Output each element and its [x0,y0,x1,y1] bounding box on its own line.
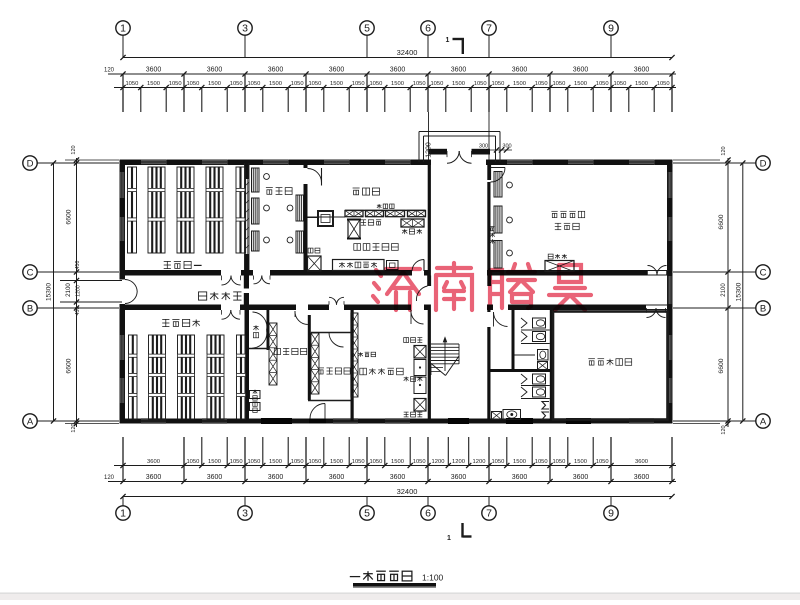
svg-text:1500: 1500 [391,459,404,465]
svg-text:1050: 1050 [308,459,321,465]
svg-text:1050: 1050 [491,459,504,465]
svg-text:1200: 1200 [432,459,445,465]
svg-text:6600: 6600 [66,209,73,224]
svg-text:3600: 3600 [635,459,648,465]
svg-text:3600: 3600 [512,474,528,481]
svg-text:2100: 2100 [721,283,727,297]
svg-text:3: 3 [242,23,248,35]
svg-text:A: A [27,417,34,428]
svg-text:32400: 32400 [397,48,418,57]
svg-text:1050: 1050 [535,459,548,465]
svg-text:1050: 1050 [474,81,487,87]
svg-text:5: 5 [364,23,370,35]
svg-text:3600: 3600 [146,474,162,481]
svg-text:3600: 3600 [634,67,650,74]
svg-text:1500: 1500 [635,81,648,87]
svg-text:15300: 15300 [46,283,53,301]
svg-text:1500: 1500 [147,81,160,87]
svg-text:2100: 2100 [65,283,72,297]
svg-text:1050: 1050 [552,459,565,465]
svg-text:6600: 6600 [66,358,73,373]
svg-text:6: 6 [425,23,431,35]
svg-text:3600: 3600 [634,474,650,481]
svg-text:15300: 15300 [736,282,743,301]
svg-text:1: 1 [446,37,450,44]
svg-text:450: 450 [75,261,81,270]
svg-text:3600: 3600 [146,67,162,74]
svg-text:3600: 3600 [207,474,223,481]
svg-text:300: 300 [502,144,511,150]
svg-text:1050: 1050 [247,459,260,465]
svg-text:1050: 1050 [308,81,321,87]
svg-text:32400: 32400 [397,487,418,496]
svg-text:1050: 1050 [596,459,609,465]
svg-text:120: 120 [104,68,115,74]
svg-text:1050: 1050 [186,81,199,87]
svg-text:1050: 1050 [352,459,365,465]
svg-text:7: 7 [486,508,492,520]
svg-text:3600: 3600 [512,67,528,74]
svg-text:1050: 1050 [657,81,670,87]
svg-text:9: 9 [608,508,614,520]
svg-text:1500: 1500 [330,459,343,465]
svg-text:120: 120 [71,145,77,154]
svg-text:1500: 1500 [513,81,526,87]
svg-text:1500: 1500 [452,81,465,87]
svg-text:1500: 1500 [330,81,343,87]
svg-text:9: 9 [608,23,614,35]
svg-text:1500: 1500 [513,459,526,465]
svg-text:1050: 1050 [413,81,426,87]
svg-text:1050: 1050 [169,81,182,87]
svg-text:1050: 1050 [535,81,548,87]
svg-text:1050: 1050 [230,81,243,87]
svg-text:1200: 1200 [426,142,433,158]
svg-text:1050: 1050 [613,81,626,87]
svg-text:300: 300 [479,144,488,150]
svg-text:5: 5 [364,508,370,520]
svg-text:1050: 1050 [291,459,304,465]
svg-text:3600: 3600 [207,67,223,74]
svg-text:1500: 1500 [208,459,221,465]
svg-text:1:100: 1:100 [422,573,444,583]
svg-text:1500: 1500 [574,459,587,465]
svg-text:1050: 1050 [369,459,382,465]
svg-text:3600: 3600 [268,67,284,74]
svg-text:3600: 3600 [573,67,589,74]
svg-text:6600: 6600 [718,358,725,373]
svg-text:3600: 3600 [268,474,284,481]
svg-text:6600: 6600 [718,214,725,229]
svg-text:1050: 1050 [596,81,609,87]
svg-text:B: B [27,304,33,315]
svg-text:1050: 1050 [291,81,304,87]
svg-text:1500: 1500 [208,81,221,87]
svg-text:A: A [760,417,767,428]
svg-text:3600: 3600 [573,474,589,481]
svg-text:120: 120 [721,425,727,434]
svg-text:1500: 1500 [269,459,282,465]
svg-text:B: B [760,304,766,315]
svg-text:120: 120 [721,146,727,155]
svg-text:1050: 1050 [230,459,243,465]
svg-text:1: 1 [447,535,451,542]
svg-text:1050: 1050 [552,81,565,87]
svg-text:3: 3 [242,508,248,520]
svg-text:1050: 1050 [125,81,138,87]
svg-text:D: D [760,159,767,170]
svg-text:C: C [760,268,767,279]
svg-text:1: 1 [120,23,126,35]
svg-text:1500: 1500 [391,81,404,87]
svg-text:7: 7 [486,23,492,35]
svg-text:120: 120 [104,475,115,481]
svg-text:3600: 3600 [451,474,467,481]
svg-text:D: D [27,159,34,170]
svg-text:C: C [27,268,34,279]
svg-text:120: 120 [71,423,77,432]
svg-text:1050: 1050 [247,81,260,87]
svg-text:1050: 1050 [186,459,199,465]
svg-text:1050: 1050 [430,81,443,87]
svg-text:1200: 1200 [76,285,82,297]
svg-text:1200: 1200 [452,459,465,465]
svg-text:3600: 3600 [390,67,406,74]
svg-text:1050: 1050 [369,81,382,87]
svg-text:3600: 3600 [451,67,467,74]
svg-text:1200: 1200 [473,459,486,465]
svg-text:3600: 3600 [390,474,406,481]
svg-text:3600: 3600 [329,474,345,481]
svg-text:1050: 1050 [491,81,504,87]
svg-text:6: 6 [425,508,431,520]
svg-text:1050: 1050 [413,459,426,465]
svg-text:3600: 3600 [147,459,160,465]
svg-text:1500: 1500 [574,81,587,87]
svg-text:3600: 3600 [329,67,345,74]
svg-text:1500: 1500 [269,81,282,87]
svg-text:1: 1 [120,508,126,520]
svg-text:1050: 1050 [352,81,365,87]
